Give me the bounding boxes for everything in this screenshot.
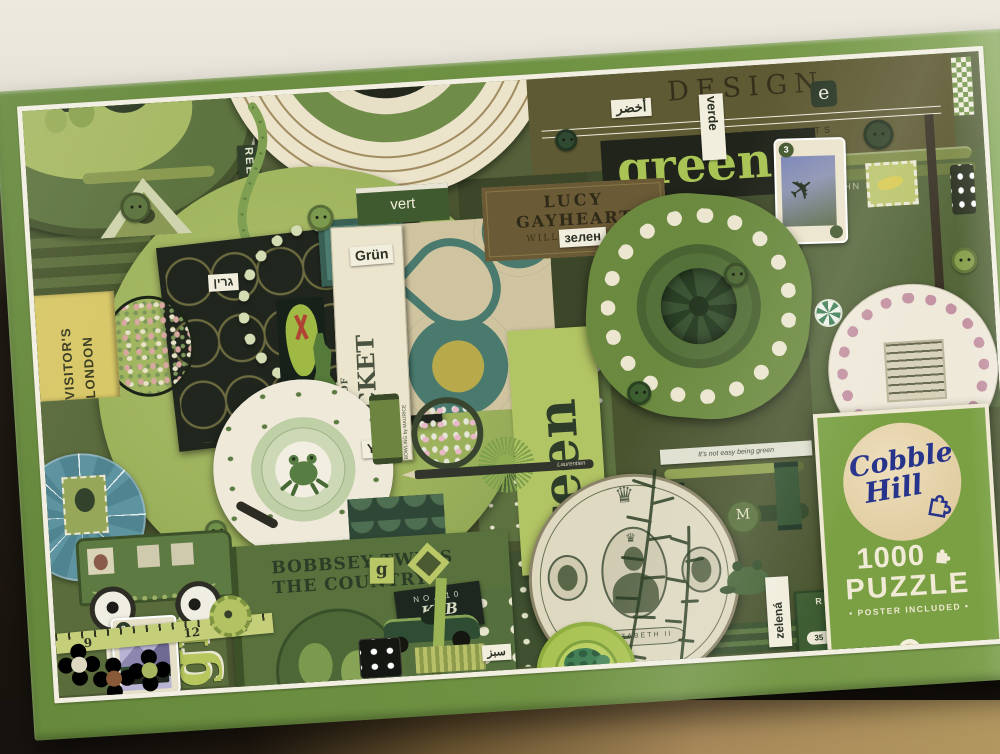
letter-e-glyph: e [817, 82, 830, 105]
label-zelena: zelená [765, 576, 793, 647]
tape-number: 9 [83, 635, 93, 650]
label-grin-hebrew: גרין [208, 273, 239, 292]
driver [93, 554, 108, 571]
puzzle-piece-icon [929, 541, 957, 569]
design-title: DESIGN [666, 67, 825, 108]
vert-label-block: vert [356, 183, 450, 226]
puzzle-box: DESIGN INDUSTRIAL ARTS JOHN KYLE e green [0, 28, 1000, 740]
van-window [171, 542, 194, 565]
label-zelen-text: зелен [564, 228, 602, 245]
cactus [335, 51, 437, 79]
pencil-tip [402, 470, 415, 479]
label-grun-text: Grün [354, 245, 389, 264]
badge-inner [416, 551, 441, 576]
label-sabz-text: سبز [487, 646, 506, 659]
puzzle-piece-silhouette [860, 609, 970, 656]
label-zelena-text: zelená [770, 578, 787, 639]
teacup-well [274, 440, 333, 499]
succulent-center [688, 295, 709, 316]
pencil-brand: Laurentien [557, 461, 586, 469]
bird-tile [883, 339, 947, 403]
visitors-line2: LONDON [77, 296, 98, 399]
letter-g-glyph: g [376, 560, 388, 580]
label-grin-hebrew-text: גרין [213, 274, 234, 289]
visitors-line1: VISITOR'S [56, 298, 77, 401]
ruban-price: 35 [814, 633, 823, 643]
collage-artwork: DESIGN INDUSTRIAL ARTS JOHN KYLE e green [22, 51, 1000, 698]
visitors-london-spine: VISITOR'S LONDON [34, 291, 120, 402]
dice-strip [949, 164, 976, 215]
kid-figure [297, 642, 334, 688]
label-verde-text: verde [704, 95, 721, 131]
vert-text: vert [390, 195, 416, 214]
tree-stamp [61, 475, 109, 536]
medallion-figure [557, 564, 579, 591]
label-sabz: سبز [482, 644, 512, 662]
fish [876, 174, 904, 193]
letter-e-card: e [810, 80, 838, 108]
puzzle-piece-icon [920, 485, 958, 523]
card-art: ✈ [781, 155, 837, 226]
tree [74, 487, 95, 512]
thread-spool [774, 461, 802, 530]
letter-m-glyph: M [735, 506, 750, 523]
brand-medallion: Cobble Hill [840, 419, 965, 544]
plane-icon: ✈ [782, 168, 823, 211]
card-bottom-badge [830, 225, 843, 238]
toy-turtle [563, 647, 605, 679]
gear-hole [224, 610, 232, 618]
flip-flop [284, 303, 320, 377]
tape-number: 12 [183, 625, 201, 641]
domino [358, 637, 402, 680]
wheel-pupil [188, 598, 201, 611]
label-verde: verde [699, 93, 727, 160]
thread-spool [369, 393, 403, 465]
label-akhdar-text: أخضر [616, 99, 647, 116]
card-number: 3 [784, 145, 789, 155]
letter-g-card: g [370, 557, 394, 583]
dish-inner [553, 638, 621, 698]
corduroy-patch [415, 643, 486, 673]
turtle-head [596, 654, 611, 667]
quote-text: It's not easy being green [698, 447, 774, 459]
wheel-pupil [106, 601, 119, 614]
photo-scene: DESIGN INDUSTRIAL ARTS JOHN KYLE e green [0, 0, 1000, 754]
fish-stamp [865, 160, 919, 207]
label-akhdar: أخضر [611, 98, 652, 119]
label-grun: Grün [349, 244, 394, 267]
cobble-hill-panel: Cobble Hill 1000 PUZZLE • POSTER INCLUDE… [813, 403, 1000, 656]
frog-figure [274, 440, 333, 499]
box-inner-frame: DESIGN INDUSTRIAL ARTS JOHN KYLE e green [17, 46, 1000, 704]
